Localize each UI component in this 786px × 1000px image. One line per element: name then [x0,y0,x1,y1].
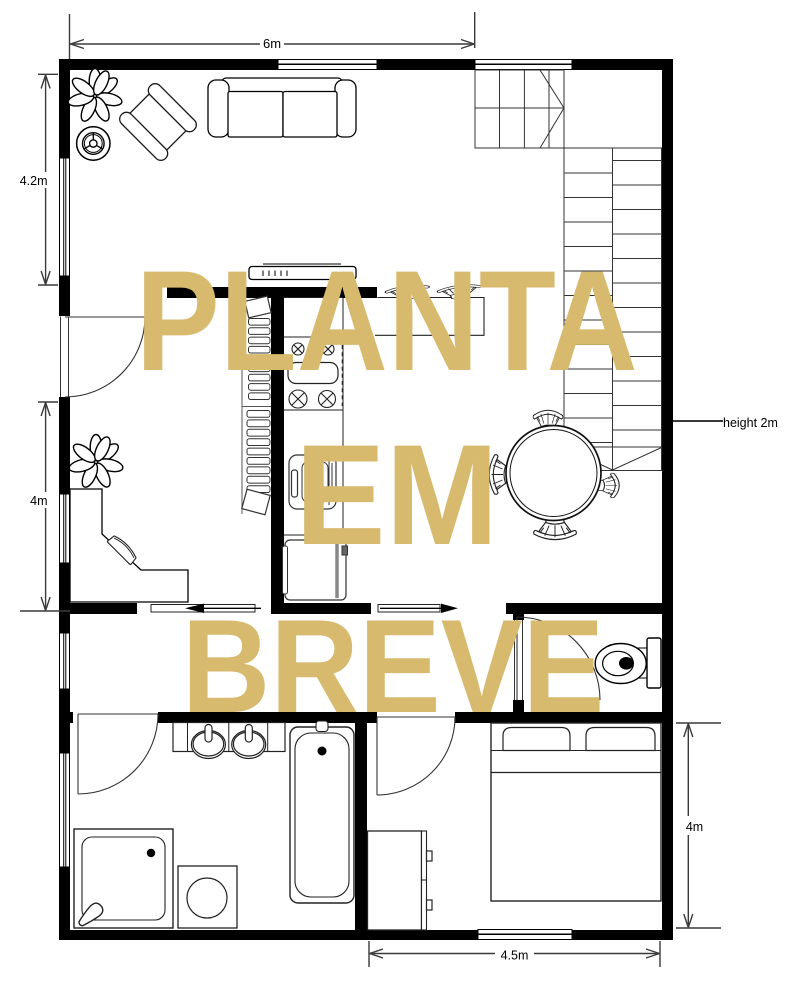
svg-text:BREVE: BREVE [182,592,605,741]
svg-text:height 2m: height 2m [723,416,778,430]
svg-text:PLANTA: PLANTA [136,241,638,401]
svg-text:EM: EM [295,415,498,575]
svg-text:4m: 4m [30,494,47,508]
svg-text:6m: 6m [263,36,281,51]
svg-text:4m: 4m [686,820,703,834]
svg-text:4.5m: 4.5m [501,949,529,963]
svg-text:4.2m: 4.2m [20,174,48,188]
